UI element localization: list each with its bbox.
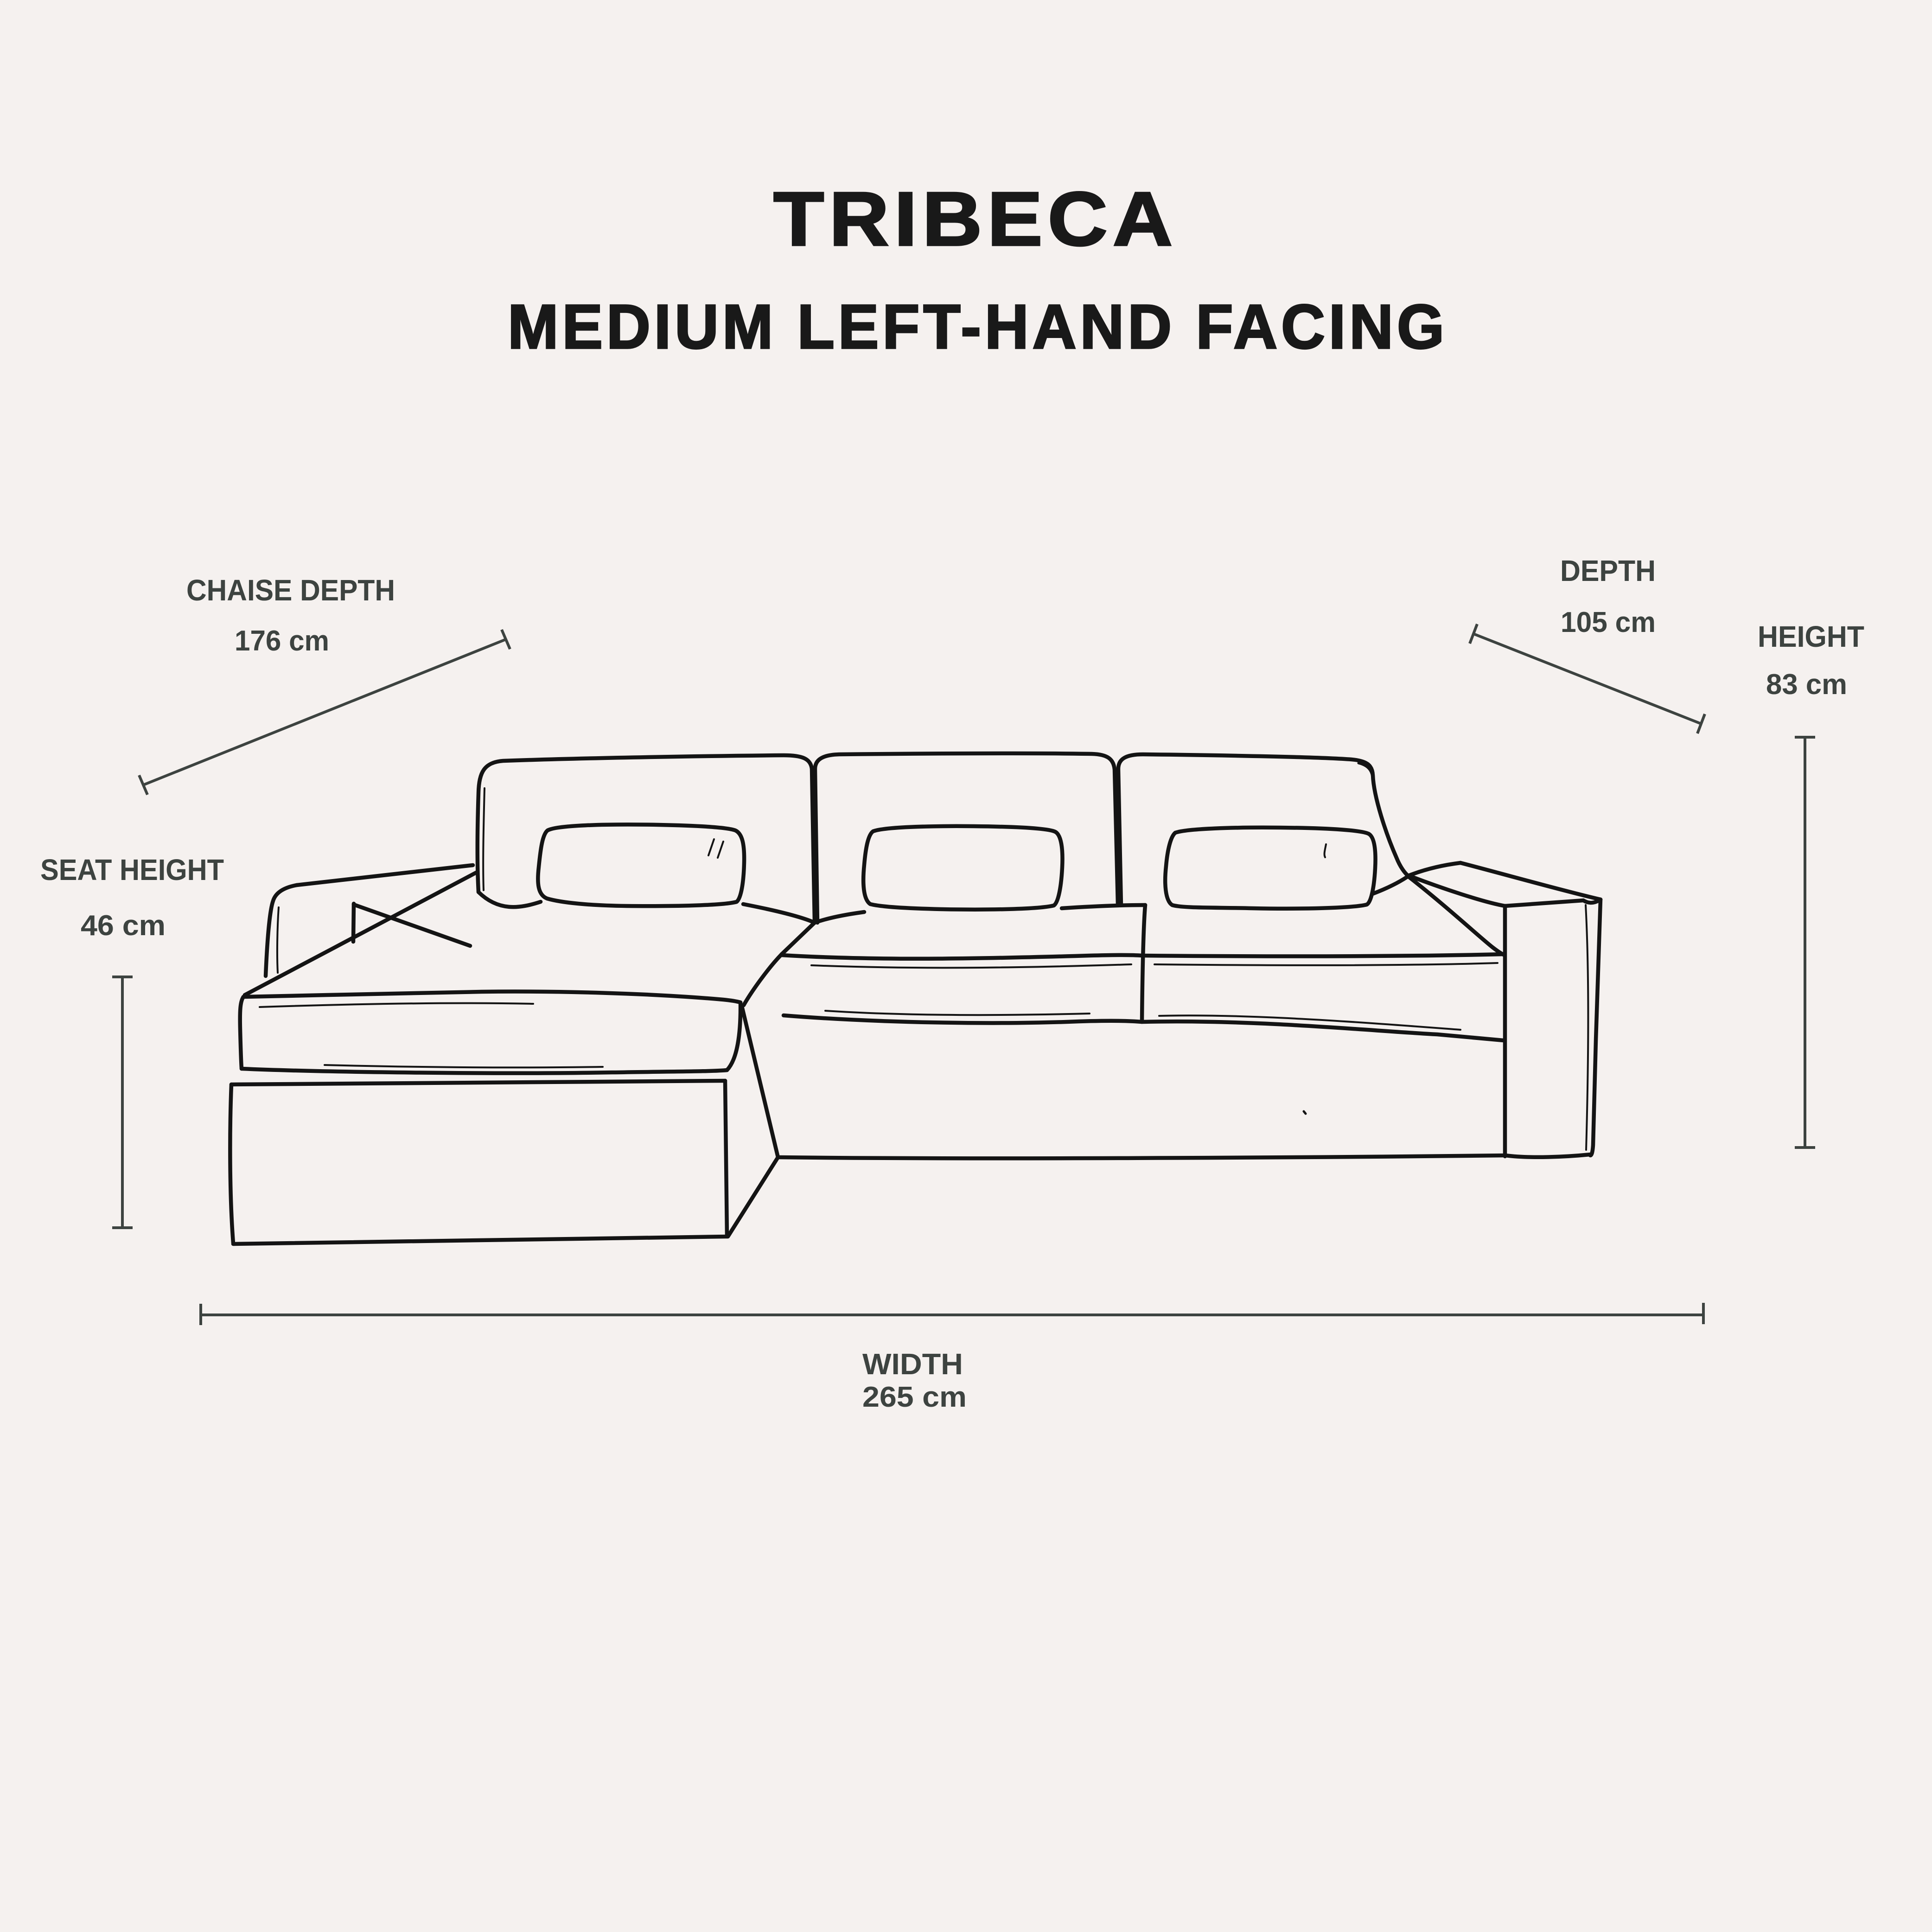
svg-text:SEAT HEIGHT: SEAT HEIGHT — [40, 853, 224, 886]
svg-text:DEPTH: DEPTH — [1560, 554, 1656, 587]
svg-text:HEIGHT: HEIGHT — [1758, 620, 1864, 653]
svg-text:TRIBECA: TRIBECA — [773, 176, 1178, 261]
svg-text:176 cm: 176 cm — [235, 625, 329, 657]
svg-text:MEDIUM LEFT-HAND FACING: MEDIUM LEFT-HAND FACING — [508, 292, 1448, 362]
svg-text:46 cm: 46 cm — [81, 910, 166, 942]
svg-text:265 cm: 265 cm — [862, 1381, 967, 1413]
svg-text:CHAISE DEPTH: CHAISE DEPTH — [186, 574, 395, 607]
svg-text:83 cm: 83 cm — [1766, 669, 1847, 701]
svg-text:105 cm: 105 cm — [1561, 606, 1656, 638]
svg-text:WIDTH: WIDTH — [862, 1347, 963, 1381]
